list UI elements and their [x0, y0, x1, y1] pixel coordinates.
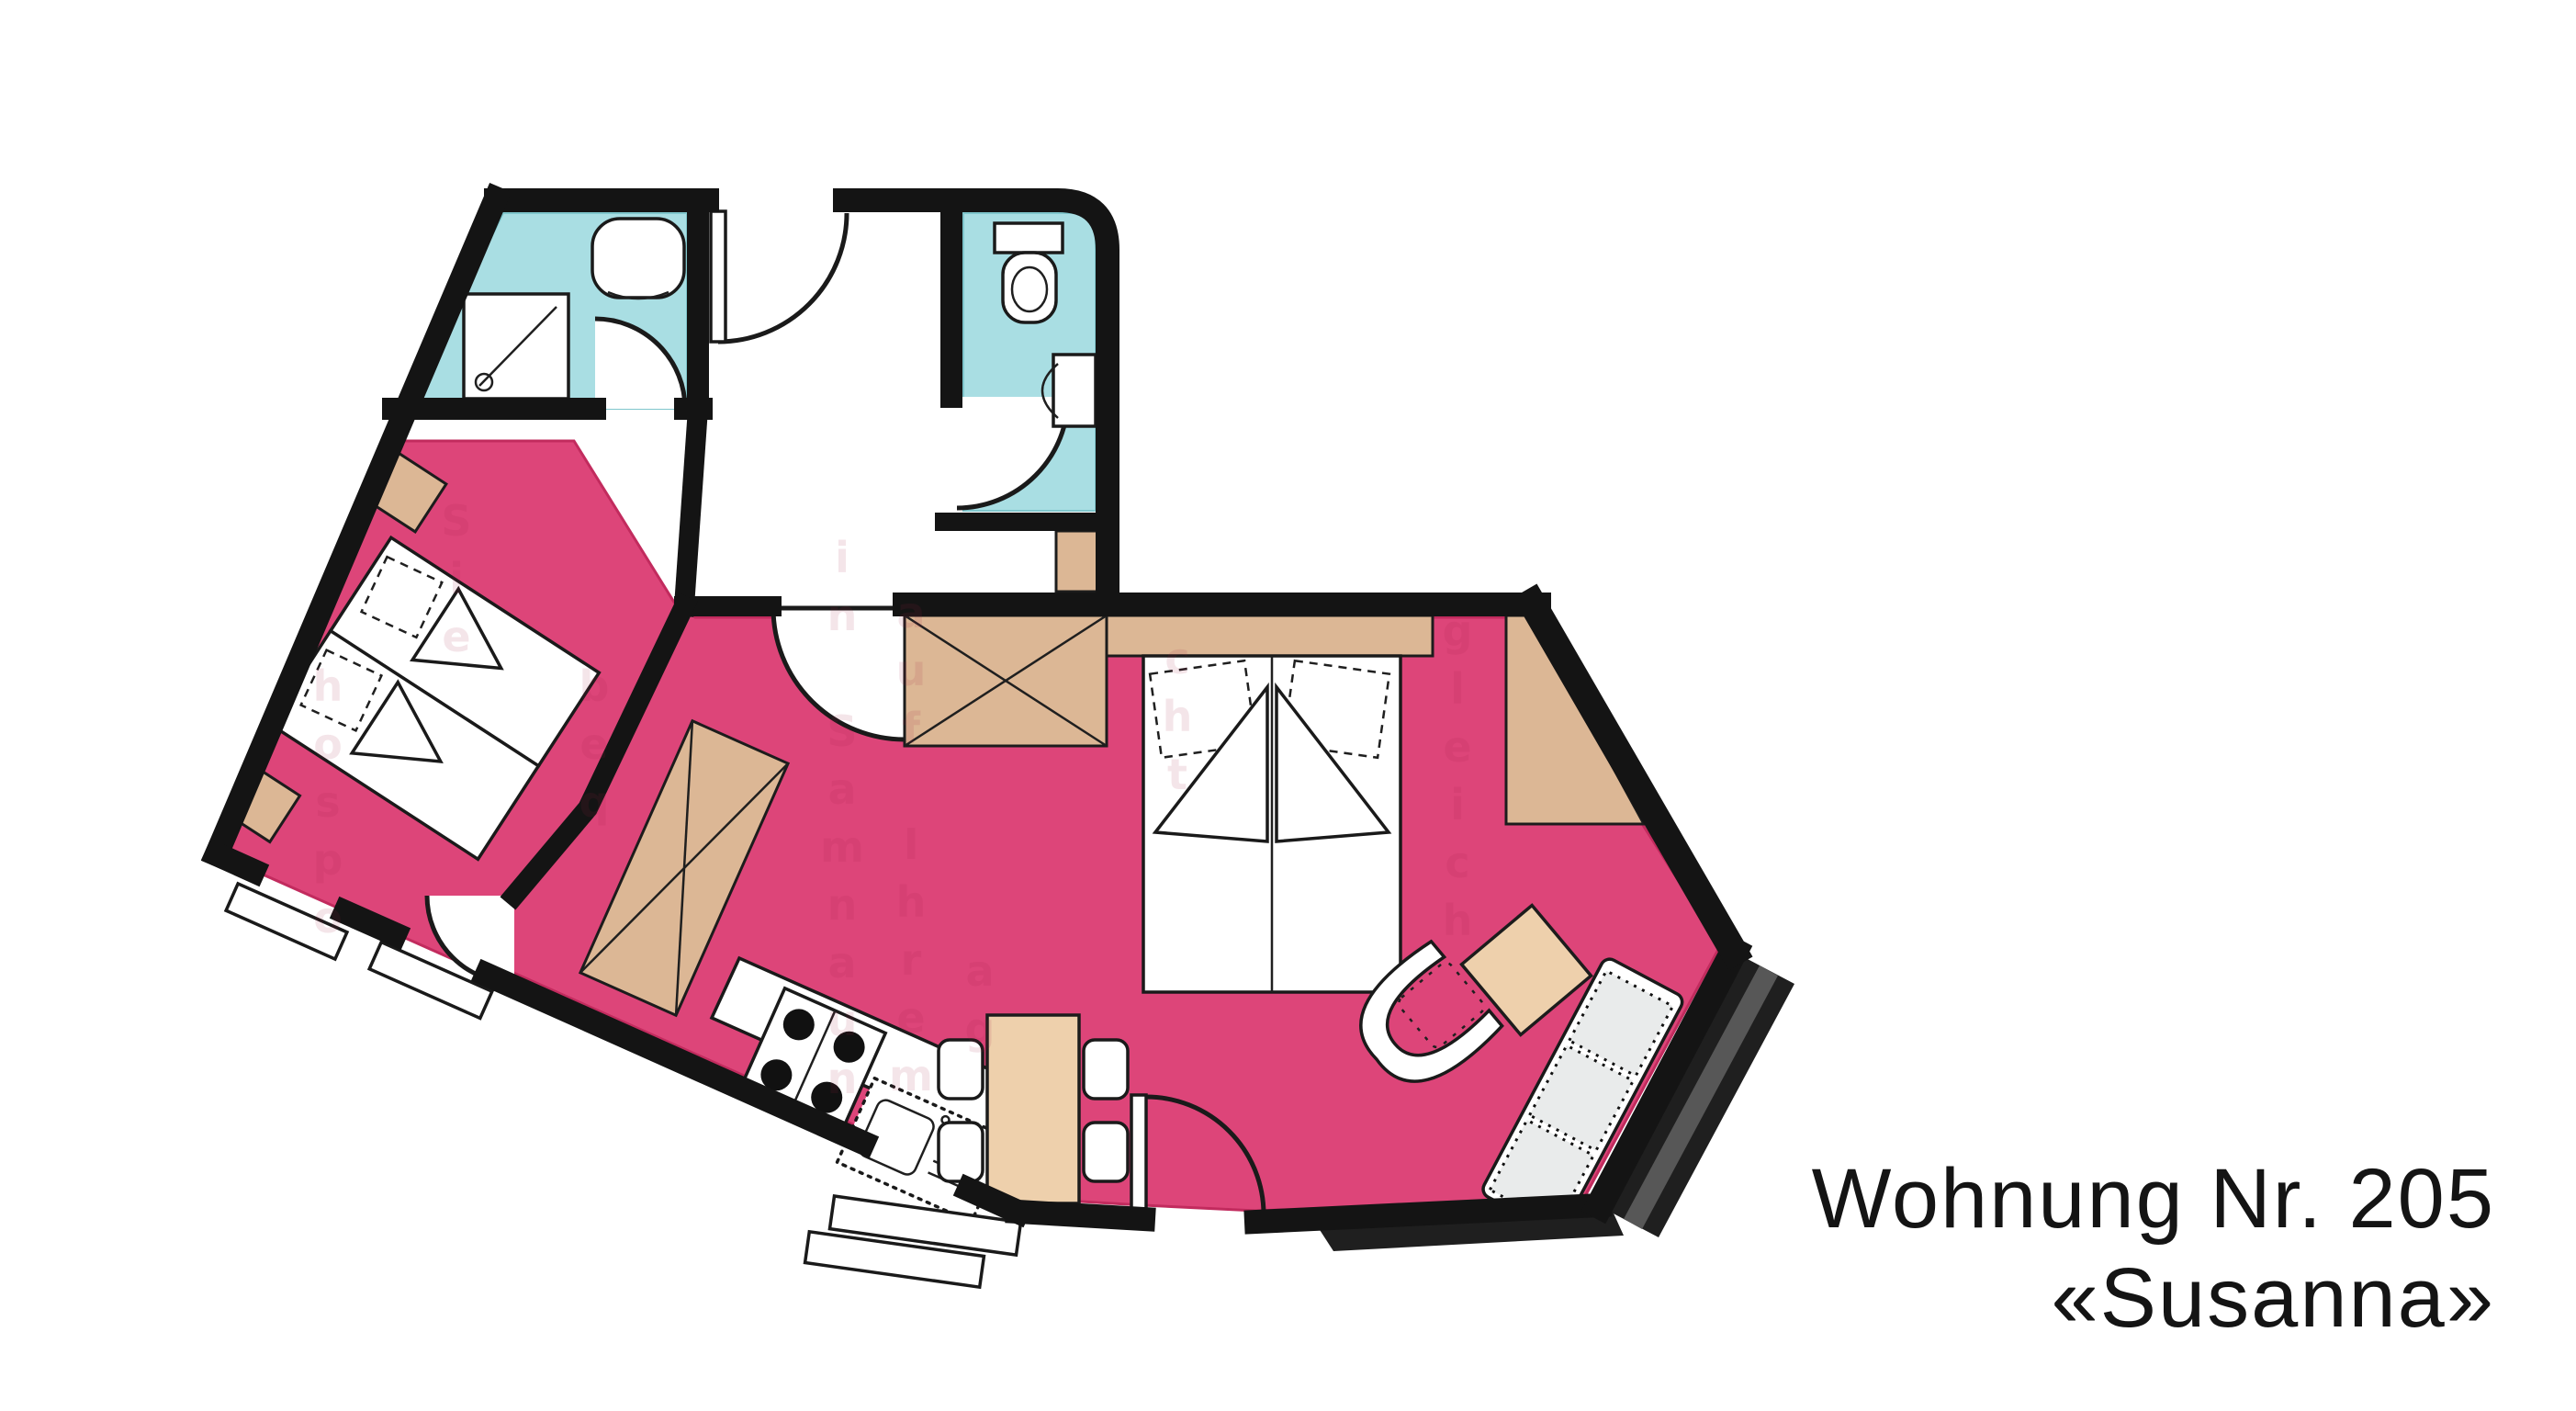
south-door-leaf: [1131, 1095, 1146, 1218]
washbasin-icon: [592, 219, 684, 298]
plan-title-line1: Wohnung Nr. 205: [1812, 1150, 2495, 1249]
floor-plan-page: Sie hospo beq in Samnaun auf Ihrem cht g…: [0, 0, 2576, 1411]
dining-chair: [1084, 1123, 1128, 1181]
dining-table: [987, 1015, 1079, 1203]
entrance-door: [711, 211, 847, 342]
wall-hall-funnel: [684, 409, 698, 606]
shower-icon: [464, 294, 568, 399]
plan-title-line2: «Susanna»: [1812, 1249, 2495, 1349]
toilet-icon: [995, 223, 1063, 322]
wardrobe: [905, 615, 1107, 746]
dining-chair: [939, 1040, 983, 1099]
wall-south: [1018, 1205, 1600, 1222]
dining-chair: [939, 1123, 983, 1181]
double-bed: [1143, 656, 1400, 992]
corner-wardrobe: [1506, 615, 1644, 824]
dining-chair: [1084, 1040, 1128, 1099]
entrance-door-arc-icon: [718, 213, 847, 342]
entrance-door-leaf: [711, 211, 726, 342]
plan-title: Wohnung Nr. 205 «Susanna»: [1812, 1150, 2495, 1348]
headboard-shelf: [1107, 615, 1433, 656]
